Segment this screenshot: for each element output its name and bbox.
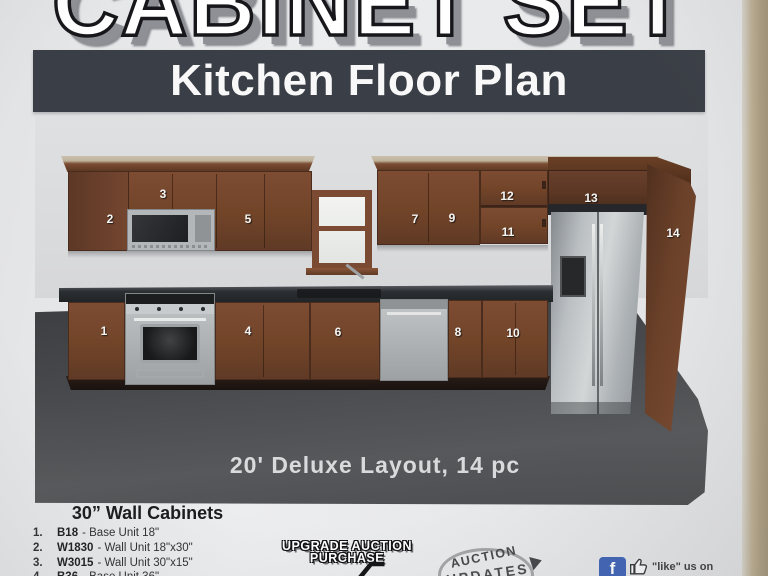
fridge-handle-left [592,224,595,386]
legend-heading: 30” Wall Cabinets [40,503,255,524]
cabinet-label-10: 10 [504,326,522,340]
legend-code: W1830 [57,542,93,554]
sink [297,289,381,298]
range-oven [125,293,215,385]
microwave-vent [132,245,210,248]
cabinet-label-13: 13 [582,191,600,205]
dishwasher-handle [387,312,441,315]
legend-desc: - Base Unit 36" [82,571,159,576]
legend-code: B18 [57,527,78,539]
legend-number: 4. [33,571,57,576]
legend-number: 2. [33,542,57,554]
microwave-controls [195,215,211,242]
legend-code: W3015 [57,557,93,569]
legend-number: 1. [33,527,57,539]
wall-cabinet-7-9 [377,170,480,245]
cabinet-hinge [542,219,546,227]
window [312,190,372,270]
facebook-like-text: "like" us on [652,561,713,573]
thumbs-up-icon [629,555,649,576]
cabinet-label-5: 5 [239,212,257,226]
layout-caption: 20' Deluxe Layout, 14 pc [55,452,695,479]
cabinet-divider [263,305,264,377]
cabinet-divider [216,174,217,248]
microwave [127,209,215,251]
auction-updates-badge: AUCTION UPDATES [436,543,542,576]
fridge-handle-right [600,224,603,386]
window-rail [319,226,365,231]
cabinet-label-4: 4 [239,324,257,338]
fridge-dispenser [560,256,586,296]
cabinet-label-7: 7 [406,212,424,226]
fridge-door-split [597,212,599,414]
facebook-icon: f [599,557,626,576]
cooktop [126,294,214,304]
shopping-cart-icon [276,558,406,576]
cabinet-label-3: 3 [154,187,172,201]
banner-text: Kitchen Floor Plan [170,56,568,106]
cabinet-label-2: 2 [101,212,119,226]
banner: Kitchen Floor Plan [33,50,705,112]
legend-item-1: 1. B18 - Base Unit 18" [33,527,293,539]
range-knob [157,307,161,311]
base-cabinet-8 [448,300,482,378]
wall-shadow [68,251,312,258]
cabinet-label-1: 1 [95,324,113,338]
base-cabinet-4 [215,302,310,380]
cabinet-label-12: 12 [498,189,516,203]
legend-item-3: 3. W3015 - Wall Unit 30"x15" [33,557,293,569]
base-cabinet-6 [310,302,380,380]
table-background [742,0,768,576]
legend-desc: - Base Unit 18" [82,527,159,539]
base-cabinet-1 [68,302,125,380]
cabinet-hinge [542,181,546,189]
fridge-base-shadow [551,402,644,414]
legend-item-4: 4. B36 - Base Unit 36" [33,571,293,576]
cabinet-divider [264,174,265,248]
oven-window [140,324,200,363]
legend-desc: - Wall Unit 30"x15" [97,557,192,569]
cabinet-label-9: 9 [443,211,461,225]
range-controls [126,304,214,314]
cabinet-label-11: 11 [499,225,517,239]
dishwasher [380,299,448,381]
oven-drawer [136,369,204,378]
cabinet-divider [172,174,173,212]
legend-desc: - Wall Unit 18"x30" [97,542,192,554]
refrigerator [551,212,644,414]
cabinet-label-8: 8 [449,325,467,339]
oven-handle [134,318,206,321]
wall-cabinet-2 [69,172,129,250]
poster-title: CABINET SET [44,0,696,51]
microwave-window [132,215,188,242]
cabinet-divider [428,173,429,242]
crown-molding-left [61,156,315,172]
cabinet-label-14: 14 [664,226,682,240]
wall-cabinet-13 [548,170,652,208]
legend-number: 3. [33,557,57,569]
flyer-photo: CABINET SET Kitchen Floor Plan [0,0,768,576]
legend-code: B36 [57,571,78,576]
dishwasher-controls [381,300,447,309]
window-sill [306,268,378,275]
legend-item-2: 2. W1830 - Wall Unit 18"x30" [33,542,293,554]
range-knob [179,307,183,311]
wall-shadow [377,245,548,252]
cabinet-label-6: 6 [329,325,347,339]
range-knob [135,307,139,311]
range-knob [201,307,205,311]
